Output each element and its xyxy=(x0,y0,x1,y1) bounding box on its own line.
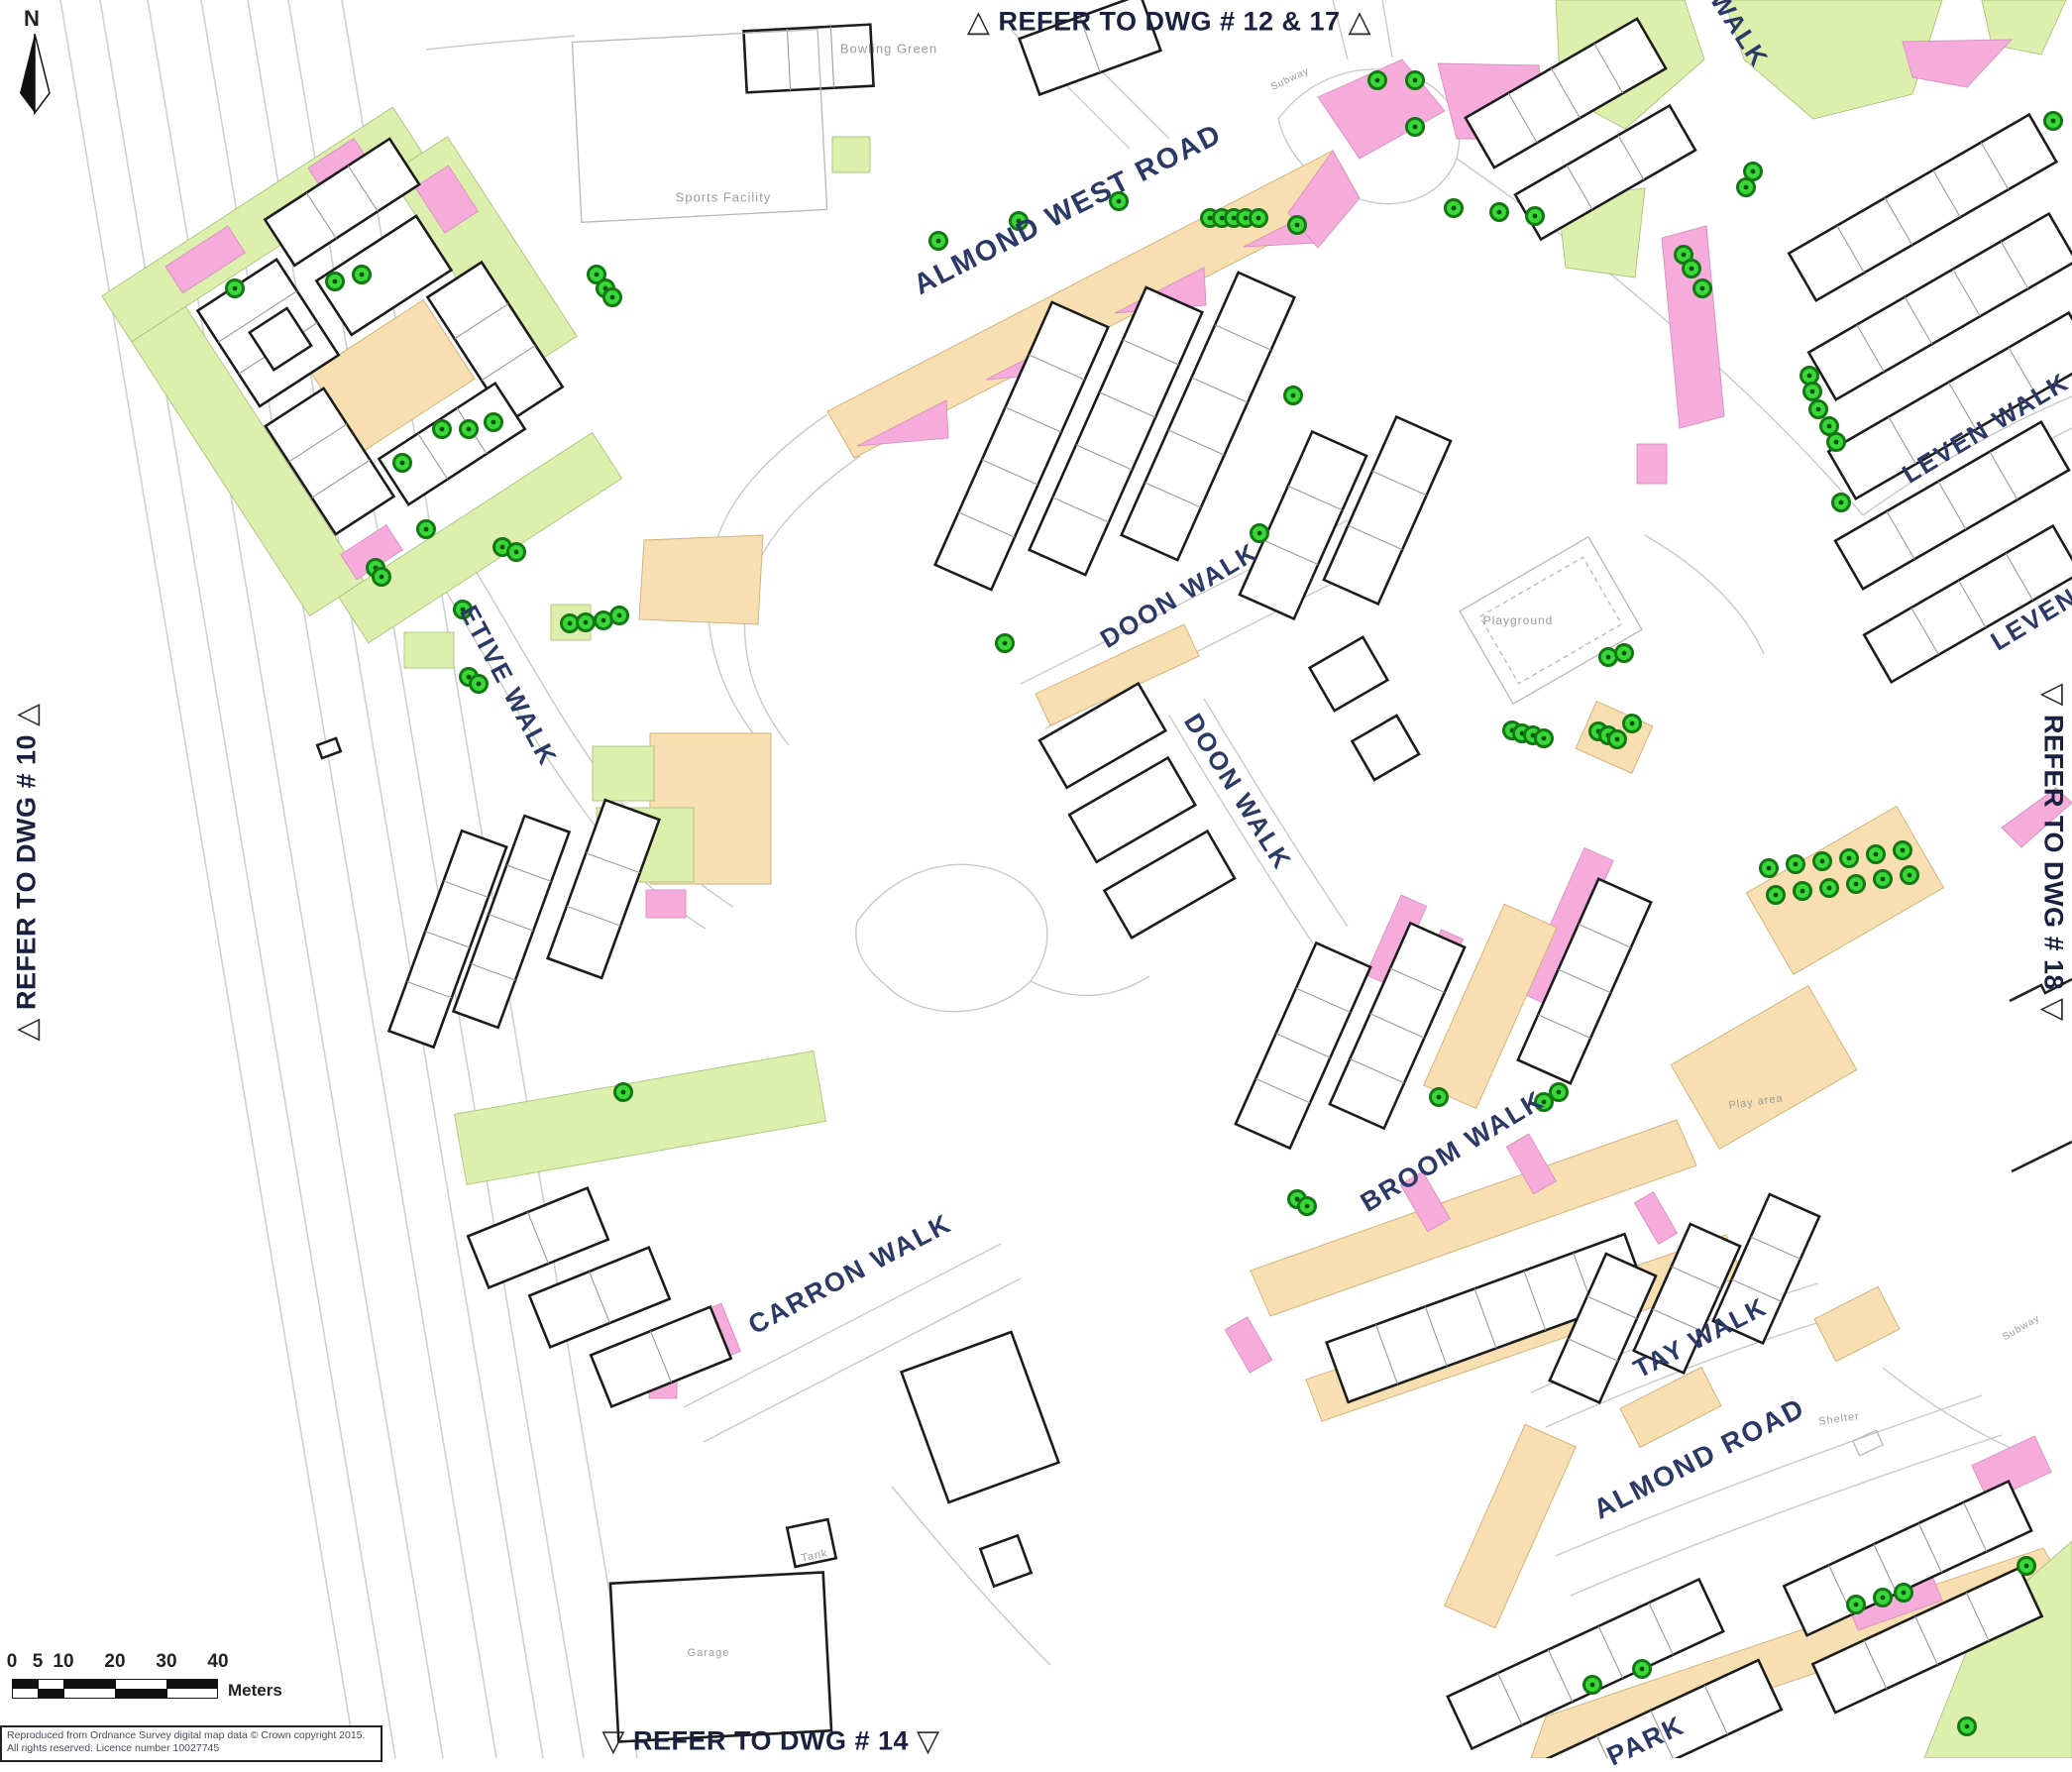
triangle-up-icon: △ xyxy=(1349,5,1372,40)
facility-label-tank: Tank xyxy=(800,1547,828,1564)
north-label: N xyxy=(24,6,40,32)
street-label-leven-partial: LEVEN xyxy=(1986,582,2072,657)
street-label-broom-walk: BROOM WALK xyxy=(1356,1085,1550,1219)
scale-tick: 40 xyxy=(207,1651,228,1673)
street-label-park-partial: PARK xyxy=(1602,1711,1690,1772)
street-label-almond-west-road: ALMOND WEST ROAD xyxy=(909,118,1228,302)
north-arrow: N xyxy=(10,6,61,135)
ref-label-text: REFER TO DWG # 14 xyxy=(633,1726,909,1757)
north-arrow-icon xyxy=(10,32,61,135)
scale-tick: 10 xyxy=(53,1651,73,1673)
facility-label-playground: Playground xyxy=(1483,613,1554,627)
triangle-down-icon: ▽ xyxy=(2036,683,2071,707)
street-label-doon-walk-2: DOON WALK xyxy=(1177,709,1298,876)
scale-unit-label: Meters xyxy=(228,1681,282,1701)
facility-label-subway-east: Subway xyxy=(2001,1313,2042,1343)
scale-tick: 20 xyxy=(104,1651,125,1673)
scale-bar: 0 5 10 20 30 40 Meters xyxy=(0,1651,317,1711)
ref-label-top: △REFER TO DWG # 12 & 17△ xyxy=(967,5,1371,40)
copyright-line2: All rights reserved. Licence number 1002… xyxy=(7,1742,376,1755)
street-label-walk-partial: WALK xyxy=(1703,0,1775,73)
triangle-up-icon: △ xyxy=(10,703,45,726)
ref-label-right: ▽REFER TO DWG # 18▽ xyxy=(2036,683,2071,1021)
facility-label-garage: Garage xyxy=(688,1647,730,1659)
street-label-tay-walk: TAY WALK xyxy=(1628,1291,1772,1384)
street-label-etive-walk: ETIVE WALK xyxy=(453,601,563,772)
facility-label-bowling-green: Bowling Green xyxy=(840,42,937,56)
street-label-leven-walk: LEVEN WALK xyxy=(1897,367,2072,491)
facility-label-shelter: Shelter xyxy=(1817,1410,1860,1428)
scale-tick: 30 xyxy=(156,1651,176,1673)
copyright-line1: Reproduced from Ordnance Survey digital … xyxy=(7,1729,376,1742)
scale-tick: 0 xyxy=(7,1651,18,1673)
facility-label-sports-facility: Sports Facility xyxy=(676,190,772,205)
triangle-down-icon: ▽ xyxy=(601,1724,625,1759)
scale-tick: 5 xyxy=(33,1651,44,1673)
street-label-doon-walk-1: DOON WALK xyxy=(1095,536,1263,654)
street-label-carron-walk: CARRON WALK xyxy=(743,1208,956,1341)
triangle-down-icon: ▽ xyxy=(917,1724,940,1759)
ref-label-bottom: ▽REFER TO DWG # 14▽ xyxy=(601,1724,939,1759)
ref-label-text: REFER TO DWG # 18 xyxy=(2038,715,2069,990)
triangle-up-icon: △ xyxy=(10,1018,45,1042)
copyright-box: Reproduced from Ordnance Survey digital … xyxy=(0,1725,382,1762)
triangle-up-icon: △ xyxy=(967,5,991,40)
scale-bar-checker xyxy=(12,1679,218,1699)
triangle-down-icon: ▽ xyxy=(2036,998,2071,1022)
ref-label-text: REFER TO DWG # 12 & 17 xyxy=(998,7,1340,38)
facility-label-subway-north: Subway xyxy=(1269,65,1311,93)
facility-label-play-area: Play area xyxy=(1728,1092,1785,1112)
ref-label-left: △REFER TO DWG # 10△ xyxy=(10,703,45,1041)
street-label-almond-road: ALMOND ROAD xyxy=(1588,1391,1810,1525)
ref-label-text: REFER TO DWG # 10 xyxy=(12,734,43,1010)
